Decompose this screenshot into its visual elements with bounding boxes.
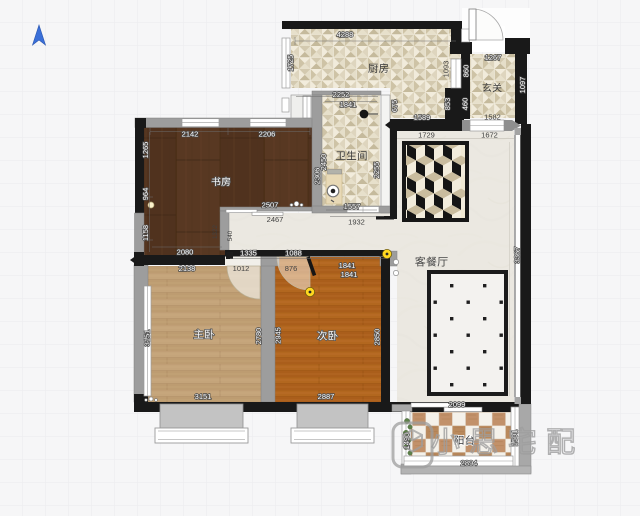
svg-text:2255: 2255 [372,162,381,179]
svg-text:853: 853 [443,98,452,111]
svg-text:1335: 1335 [240,248,257,257]
svg-text:1012: 1012 [233,264,250,273]
svg-text:2894: 2894 [461,458,478,467]
svg-text:1841: 1841 [341,270,358,279]
svg-text:2850: 2850 [372,329,381,346]
svg-text:2206: 2206 [259,129,276,138]
svg-text:2306: 2306 [312,168,321,185]
svg-text:2252: 2252 [333,90,350,99]
svg-text:1589: 1589 [414,113,431,122]
svg-text:1932: 1932 [348,217,365,226]
svg-text:1672: 1672 [481,130,498,139]
svg-text:2080: 2080 [177,247,194,256]
svg-text:2467: 2467 [267,215,284,224]
svg-text:2099: 2099 [449,400,466,409]
svg-text:1725: 1725 [286,55,295,72]
svg-text:964: 964 [141,188,150,201]
svg-text:540: 540 [227,230,234,241]
svg-text:1093: 1093 [441,61,450,78]
svg-text:1841: 1841 [340,100,357,109]
svg-text:1265: 1265 [141,142,150,159]
svg-text:1267: 1267 [485,53,502,62]
svg-text:2138: 2138 [179,264,196,273]
svg-text:2887: 2887 [318,392,335,401]
svg-text:1557: 1557 [344,202,361,211]
svg-text:460: 460 [460,98,469,111]
svg-text:1097: 1097 [518,77,527,94]
svg-text:4288: 4288 [337,30,354,39]
svg-text:860: 860 [461,65,470,78]
svg-text:2507: 2507 [262,200,279,209]
svg-text:3367: 3367 [512,247,521,264]
svg-text:2780: 2780 [254,328,263,345]
svg-text:1841: 1841 [339,261,356,270]
svg-text:1158: 1158 [141,225,150,241]
svg-text:1729: 1729 [418,130,435,139]
svg-text:1088: 1088 [285,248,302,257]
svg-text:1322: 1322 [212,225,219,240]
svg-text:876: 876 [285,264,298,273]
svg-text:2142: 2142 [182,129,199,138]
svg-text:3151: 3151 [195,392,212,401]
svg-text:3151: 3151 [142,330,151,347]
svg-text:675: 675 [390,100,399,113]
svg-text:2945: 2945 [273,327,282,344]
svg-text:1582: 1582 [484,112,501,121]
